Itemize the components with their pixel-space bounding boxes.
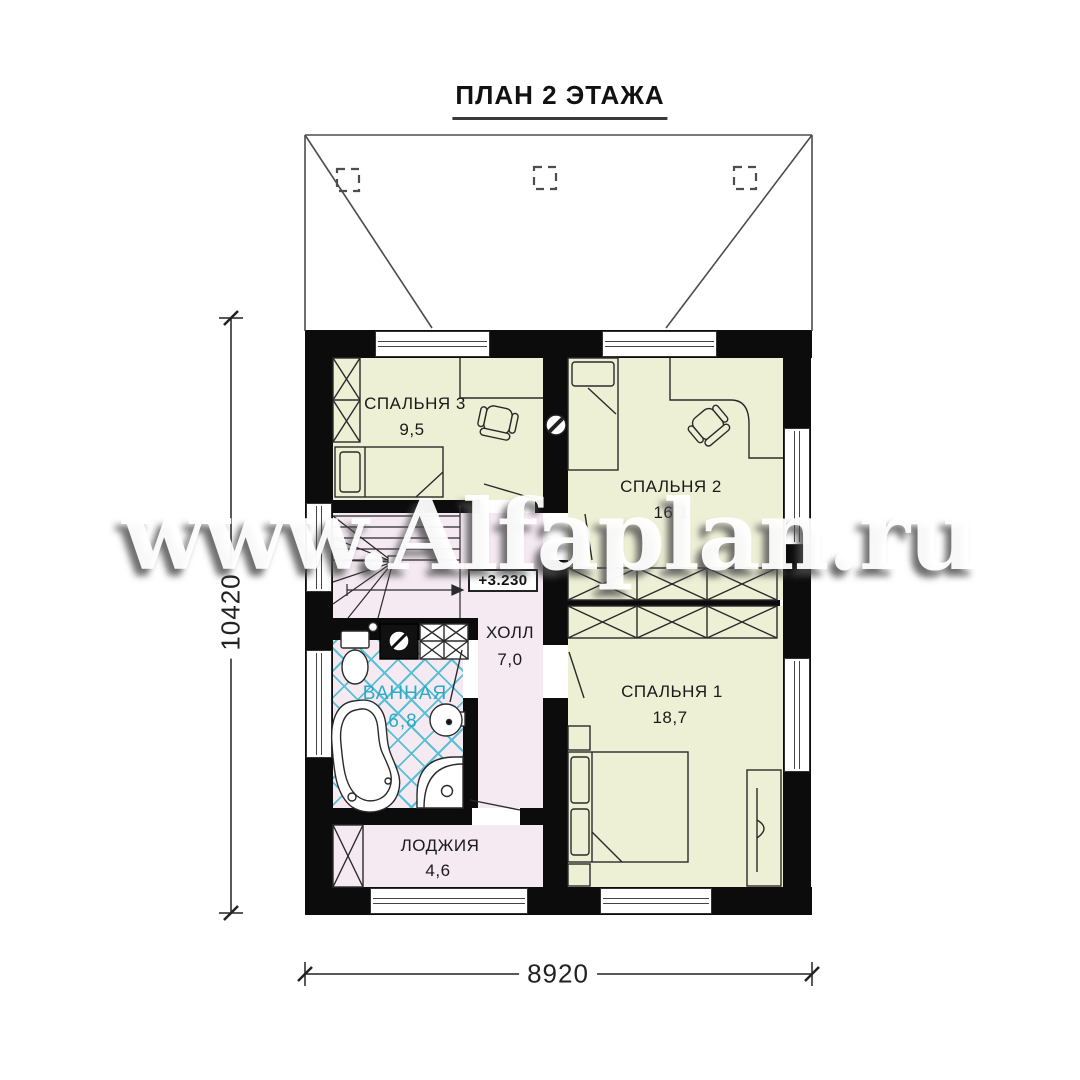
loggia-label: ЛОДЖИЯ	[401, 836, 480, 856]
floor-plan-canvas: ПЛАН 2 ЭТАЖА	[0, 0, 1080, 1080]
watermark: www.Alfaplan.ru	[122, 478, 977, 592]
roof-hatch-marker-icon	[534, 167, 556, 189]
bedroom1-floor	[568, 606, 783, 887]
roof-outline-icon	[305, 135, 812, 331]
plan-title: ПЛАН 2 ЭТАЖА	[452, 80, 667, 120]
window-bedroom1-bottom	[600, 888, 712, 914]
roof-hatch-marker-icon	[734, 167, 756, 189]
hall-corridor-floor	[478, 618, 543, 808]
bedroom3-area: 9,5	[399, 420, 424, 440]
window-top-2	[602, 331, 717, 357]
wall-bathroom-top	[333, 618, 478, 640]
window-top-1	[375, 331, 490, 357]
hall-label: ХОЛЛ	[486, 623, 534, 643]
dimension-horizontal-value: 8920	[519, 959, 597, 990]
hall-area: 7,0	[497, 650, 522, 670]
bathroom-area: 6,8	[388, 711, 417, 733]
wall-loggia-top-left	[305, 808, 472, 825]
bedroom1-label: СПАЛЬНЯ 1	[621, 682, 723, 702]
window-loggia	[370, 888, 528, 914]
wall-left	[305, 330, 333, 915]
bathroom-label: ВАННАЯ	[363, 683, 448, 705]
window-right-bedroom1	[784, 658, 810, 772]
window-left-bathroom	[306, 650, 332, 758]
wall-bedroom-divider	[568, 600, 780, 606]
bedroom3-label: СПАЛЬНЯ 3	[364, 394, 466, 414]
wall-bathroom-right	[463, 698, 478, 808]
wall-middle-seg3	[543, 698, 568, 888]
roof-hatch-marker-icon	[337, 169, 359, 191]
bedroom1-area: 18,7	[652, 708, 687, 728]
wall-loggia-top-right	[520, 808, 543, 825]
loggia-area: 4,6	[425, 861, 450, 881]
wall-right	[783, 330, 811, 915]
